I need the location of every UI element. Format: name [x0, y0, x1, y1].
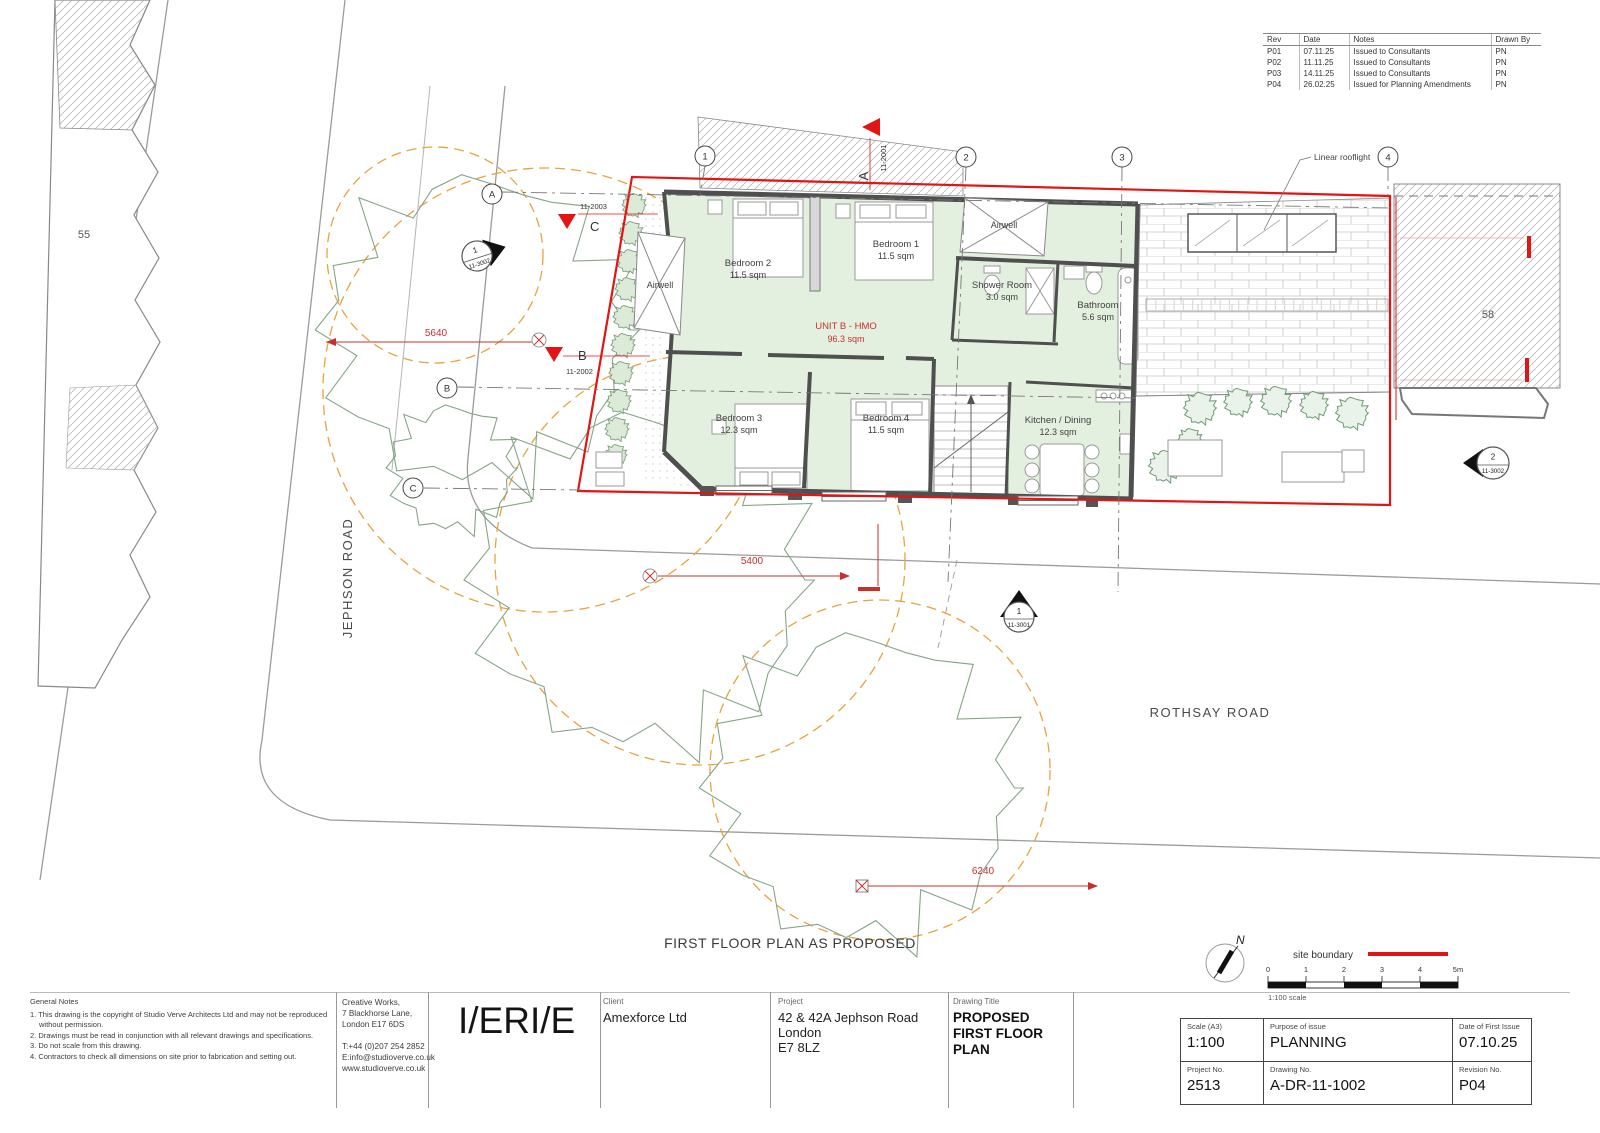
elevation-2-num: 2: [1491, 453, 1496, 462]
client-value: Amexforce Ltd: [603, 1010, 763, 1025]
room-area-bedroom-1: 11.5 sqm: [878, 251, 914, 261]
contact-phone: T:+44 (0)207 254 2852: [342, 1041, 426, 1052]
drawing-title-line: FIRST FLOOR PLAN: [953, 1026, 1071, 1058]
general-note: 2. Drawings must be read in conjunction …: [30, 1031, 334, 1042]
title-block-separator: [600, 992, 601, 1108]
title-block-separator: [948, 992, 949, 1108]
title-block-divider: [30, 992, 1570, 993]
room-area-bathroom: 5.6 sqm: [1082, 312, 1114, 322]
scale-bar: 0 1 2 3 4 5m 1:100 scale: [1266, 965, 1463, 1002]
neighbour-58: [1394, 184, 1560, 418]
dimension-5640: 5640: [425, 328, 448, 339]
scale-tick-0: 0: [1266, 965, 1270, 974]
rear-garden: [1136, 386, 1390, 483]
scale-tick-5m: 5m: [1453, 965, 1463, 974]
rev-col-header: Rev: [1263, 34, 1299, 46]
purpose-value: PLANNING: [1270, 1034, 1446, 1051]
revision-no-cell: Revision No. P04: [1453, 1062, 1531, 1104]
grid-col-4: 4: [1385, 153, 1390, 164]
jephson-road-label: JEPHSON ROAD: [340, 518, 355, 639]
client-field: Client Amexforce Ltd: [603, 997, 763, 1025]
elevation-marker-3: 1 11-3001: [1000, 590, 1038, 632]
practice-address: Creative Works, 7 Blackhorse Lane, Londo…: [342, 997, 426, 1074]
project-line: 42 & 42A Jephson Road: [778, 1010, 943, 1025]
date-cell: 14.11.25: [1299, 68, 1349, 79]
date-cell: 26.02.25: [1299, 79, 1349, 90]
drawing-no-cell: Drawing No. A-DR-11-1002: [1264, 1062, 1453, 1104]
project-no-cell: Project No. 2513: [1181, 1062, 1264, 1104]
room-label-bathroom: Bathroom: [1077, 300, 1118, 311]
airwell-label-2: Airwell: [991, 220, 1018, 230]
date-col-header: Date: [1299, 34, 1349, 46]
grid-col-3: 3: [1119, 153, 1124, 164]
plan-caption: FIRST FLOOR PLAN AS PROPOSED: [664, 935, 916, 951]
elevation-marker-2: 2 11-3002: [1463, 447, 1509, 479]
title-block-separator: [336, 992, 337, 1108]
dimension-5400: 5400: [741, 556, 764, 567]
scale-value: 1:100: [1187, 1034, 1257, 1051]
elevation-2-ref: 11-3002: [1482, 468, 1505, 475]
section-a-letter: A: [856, 171, 871, 180]
site-boundary-legend-label: site boundary: [1293, 950, 1353, 961]
rev-cell: P01: [1263, 46, 1299, 58]
grid-col-2: 2: [963, 153, 968, 164]
scale-cell: Scale (A3) 1:100: [1181, 1019, 1264, 1062]
elevation-3-num: 1: [1017, 607, 1022, 616]
date-cell: 11.11.25: [1299, 57, 1349, 68]
scale-table: Scale (A3) 1:100 Purpose of issue PLANNI…: [1180, 1018, 1532, 1105]
notes-cell: Issued to Consultants: [1349, 46, 1491, 58]
notes-cell: Issued to Consultants: [1349, 57, 1491, 68]
room-label-bedroom-4: Bedroom 4: [863, 413, 909, 424]
revision-row: P04 26.02.25 Issued for Planning Amendme…: [1263, 79, 1541, 90]
drawn-cell: PN: [1491, 57, 1541, 68]
purpose-cell: Purpose of issue PLANNING: [1264, 1019, 1453, 1062]
north-label: N: [1236, 933, 1245, 947]
project-label: Project: [778, 997, 943, 1006]
scale-tick-4: 4: [1418, 965, 1422, 974]
revision-no-label: Revision No.: [1459, 1065, 1525, 1074]
unit-area: 96.3 sqm: [827, 334, 864, 344]
client-label: Client: [603, 997, 763, 1006]
rothsay-road-label: ROTHSAY ROAD: [1150, 705, 1271, 720]
general-note: 1. This drawing is the copyright of Stud…: [30, 1010, 334, 1031]
section-c-ref: 11-2003: [580, 202, 607, 211]
date-cell: 07.11.25: [1299, 46, 1349, 58]
section-a-ref: 11-2001: [879, 145, 888, 172]
room-label-bedroom-2: Bedroom 2: [725, 258, 771, 269]
first-issue-cell: Date of First Issue 07.10.25: [1453, 1019, 1531, 1062]
room-label-shower-room: Shower Room: [972, 280, 1032, 291]
neighbour-55-terrace: [38, 0, 160, 688]
drawn-cell: PN: [1491, 79, 1541, 90]
address-line: London E17 6DS: [342, 1019, 426, 1030]
notes-cell: Issued to Consultants: [1349, 68, 1491, 79]
scale-tick-3: 3: [1380, 965, 1384, 974]
drawn-cell: PN: [1491, 46, 1541, 58]
neighbour-55-label: 55: [78, 229, 90, 241]
drawn-cell: PN: [1491, 68, 1541, 79]
notes-cell: Issued for Planning Amendments: [1349, 79, 1491, 90]
verve-logo: I/ERI/E: [458, 1000, 575, 1042]
revision-table: Rev Date Notes Drawn By P01 07.11.25 Iss…: [1263, 33, 1541, 90]
drawing-no-label: Drawing No.: [1270, 1065, 1446, 1074]
contact-website[interactable]: www.studioverve.co.uk: [342, 1063, 426, 1074]
linear-rooflight-label: Linear rooflight: [1314, 152, 1371, 162]
drawing-sheet: 1 2 3 4 A B C A 11-2001 B 11-2002 C 11-2…: [0, 0, 1600, 1133]
title-block-separator: [770, 992, 771, 1108]
first-issue-label: Date of First Issue: [1459, 1022, 1525, 1031]
general-notes-heading: General Notes: [30, 997, 334, 1008]
revision-row: P03 14.11.25 Issued to Consultants PN: [1263, 68, 1541, 79]
general-note: 3. Do not scale from this drawing.: [30, 1041, 334, 1052]
drawing-title-label: Drawing Title: [953, 997, 1071, 1006]
drawing-title-line: PROPOSED: [953, 1010, 1071, 1026]
scale-tick-1: 1: [1304, 965, 1308, 974]
project-line: E7 8LZ: [778, 1040, 943, 1055]
airwell-label-1: Airwell: [647, 280, 674, 290]
project-no-value: 2513: [1187, 1077, 1257, 1094]
revision-row: P01 07.11.25 Issued to Consultants PN: [1263, 46, 1541, 58]
grid-row-b: B: [444, 384, 450, 395]
purpose-label: Purpose of issue: [1270, 1022, 1446, 1031]
general-notes: General Notes 1. This drawing is the cop…: [30, 997, 334, 1062]
room-area-bedroom-3: 12.3 sqm: [720, 425, 757, 435]
drawing-title-field: Drawing Title PROPOSED FIRST FLOOR PLAN: [953, 997, 1071, 1058]
drawing-no-value: A-DR-11-1002: [1270, 1077, 1446, 1094]
site-boundary-legend: site boundary: [1293, 950, 1448, 961]
drawn-col-header: Drawn By: [1491, 34, 1541, 46]
room-label-bedroom-1: Bedroom 1: [873, 239, 919, 250]
room-label-bedroom-3: Bedroom 3: [716, 413, 762, 424]
first-issue-value: 07.10.25: [1459, 1034, 1525, 1051]
elevation-marker-1: 1 11-3002: [458, 232, 510, 274]
rev-cell: P04: [1263, 79, 1299, 90]
room-area-shower-room: 3.0 sqm: [986, 292, 1018, 302]
revision-no-value: P04: [1459, 1077, 1525, 1094]
section-b-letter: B: [578, 348, 587, 363]
scale-label: Scale (A3): [1187, 1022, 1257, 1031]
address-line: Creative Works,: [342, 997, 426, 1008]
room-label-kitchen-dining: Kitchen / Dining: [1025, 415, 1092, 426]
elevation-3-ref: 11-3001: [1008, 622, 1031, 629]
contact-email: E:info@studioverve.co.uk: [342, 1052, 426, 1063]
grid-row-a: A: [489, 190, 496, 201]
room-area-bedroom-2: 11.5 sqm: [730, 270, 766, 280]
general-note: 4. Contractors to check all dimensions o…: [30, 1052, 334, 1063]
dimension-6240: 6240: [972, 866, 995, 877]
notes-col-header: Notes: [1349, 34, 1491, 46]
unit-label: UNIT B - HMO: [815, 321, 877, 332]
rev-cell: P02: [1263, 57, 1299, 68]
room-area-bedroom-4: 11.5 sqm: [868, 425, 904, 435]
scale-note: 1:100 scale: [1268, 993, 1306, 1002]
address-line: 7 Blackhorse Lane,: [342, 1008, 426, 1019]
title-block-separator: [428, 992, 429, 1108]
revision-row: P02 11.11.25 Issued to Consultants PN: [1263, 57, 1541, 68]
project-field: Project 42 & 42A Jephson Road London E7 …: [778, 997, 943, 1055]
project-no-label: Project No.: [1187, 1065, 1257, 1074]
section-b-ref: 11-2002: [566, 367, 593, 376]
room-area-kitchen-dining: 12.3 sqm: [1039, 427, 1076, 437]
floor-plan-drawing: 1 2 3 4 A B C A 11-2001 B 11-2002 C 11-2…: [0, 0, 1600, 1133]
section-c-letter: C: [590, 219, 599, 234]
project-line: London: [778, 1025, 943, 1040]
rear-roof: [1136, 198, 1390, 396]
title-block-separator: [1073, 992, 1074, 1108]
grid-col-1: 1: [702, 152, 707, 163]
grid-row-c: C: [410, 484, 417, 495]
rev-cell: P03: [1263, 68, 1299, 79]
scale-tick-2: 2: [1342, 965, 1346, 974]
north-arrow: N: [1206, 933, 1245, 982]
neighbour-58-label: 58: [1482, 309, 1494, 321]
revision-header-row: Rev Date Notes Drawn By: [1263, 34, 1541, 46]
